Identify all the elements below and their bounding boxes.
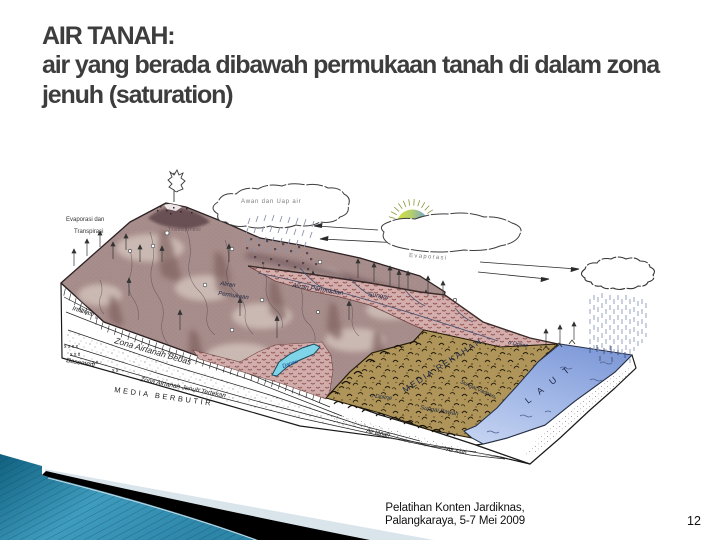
svg-text:Awan dan Uap air: Awan dan Uap air bbox=[241, 199, 301, 205]
svg-text:x x x x: x x x x bbox=[64, 344, 79, 350]
svg-text:Evaporasi: Evaporasi bbox=[409, 253, 448, 262]
svg-text:Transpirasi: Transpirasi bbox=[168, 227, 201, 233]
svg-text:Evaporasi dan: Evaporasi dan bbox=[66, 217, 104, 223]
svg-text:Transpirasi: Transpirasi bbox=[74, 229, 103, 235]
svg-text:x x: x x bbox=[112, 368, 119, 374]
